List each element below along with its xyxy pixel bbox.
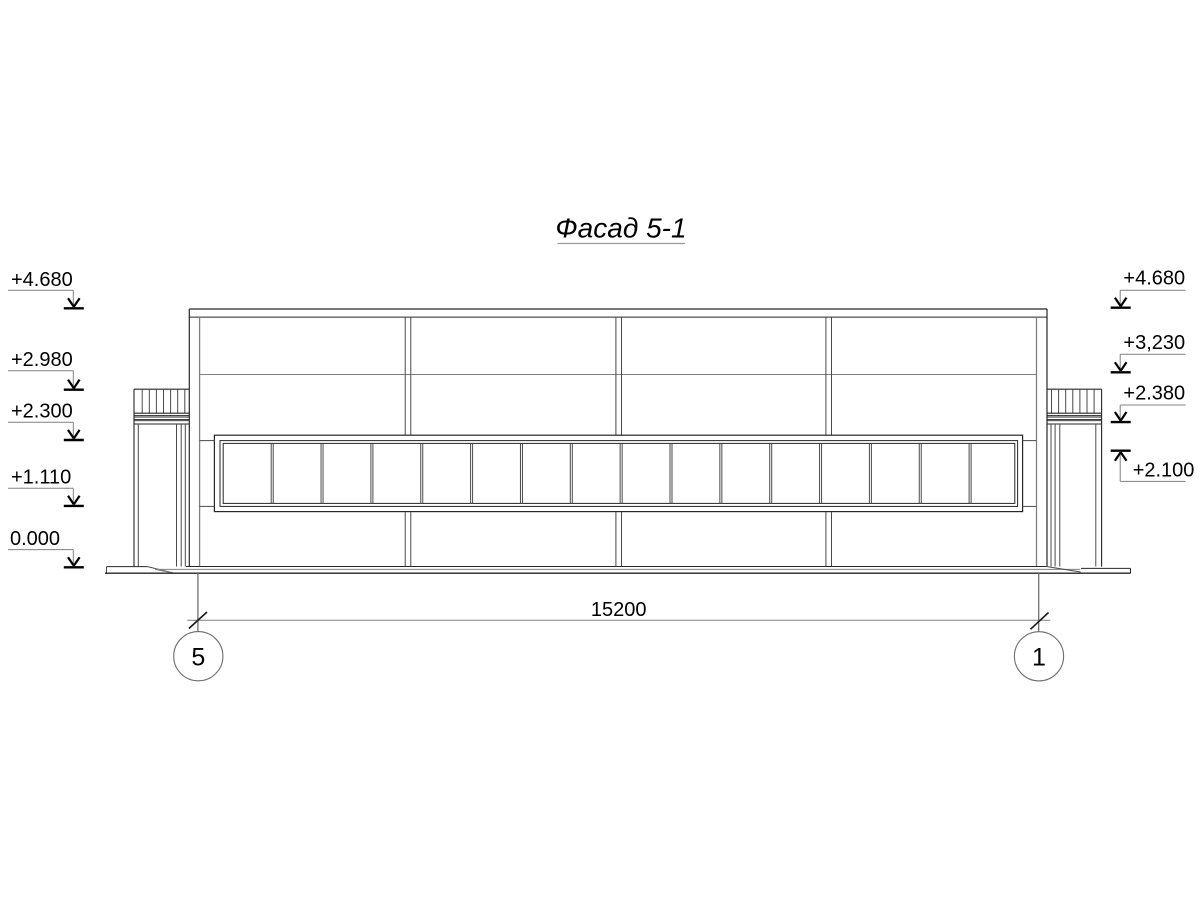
svg-text:+2.380: +2.380 xyxy=(1123,383,1185,405)
svg-text:+1.110: +1.110 xyxy=(11,467,71,489)
svg-text:15200: 15200 xyxy=(591,599,647,621)
svg-text:1: 1 xyxy=(1032,643,1046,671)
svg-text:Фасад 5-1: Фасад 5-1 xyxy=(555,213,686,244)
svg-text:+2.980: +2.980 xyxy=(11,349,73,371)
svg-text:+2.300: +2.300 xyxy=(11,401,73,423)
svg-text:+3,230: +3,230 xyxy=(1123,332,1185,354)
svg-text:+4.680: +4.680 xyxy=(1123,268,1185,290)
svg-text:+2.100: +2.100 xyxy=(1133,460,1195,482)
svg-text:0.000: 0.000 xyxy=(10,528,60,550)
svg-text:+4.680: +4.680 xyxy=(11,269,73,291)
svg-text:5: 5 xyxy=(191,643,205,671)
